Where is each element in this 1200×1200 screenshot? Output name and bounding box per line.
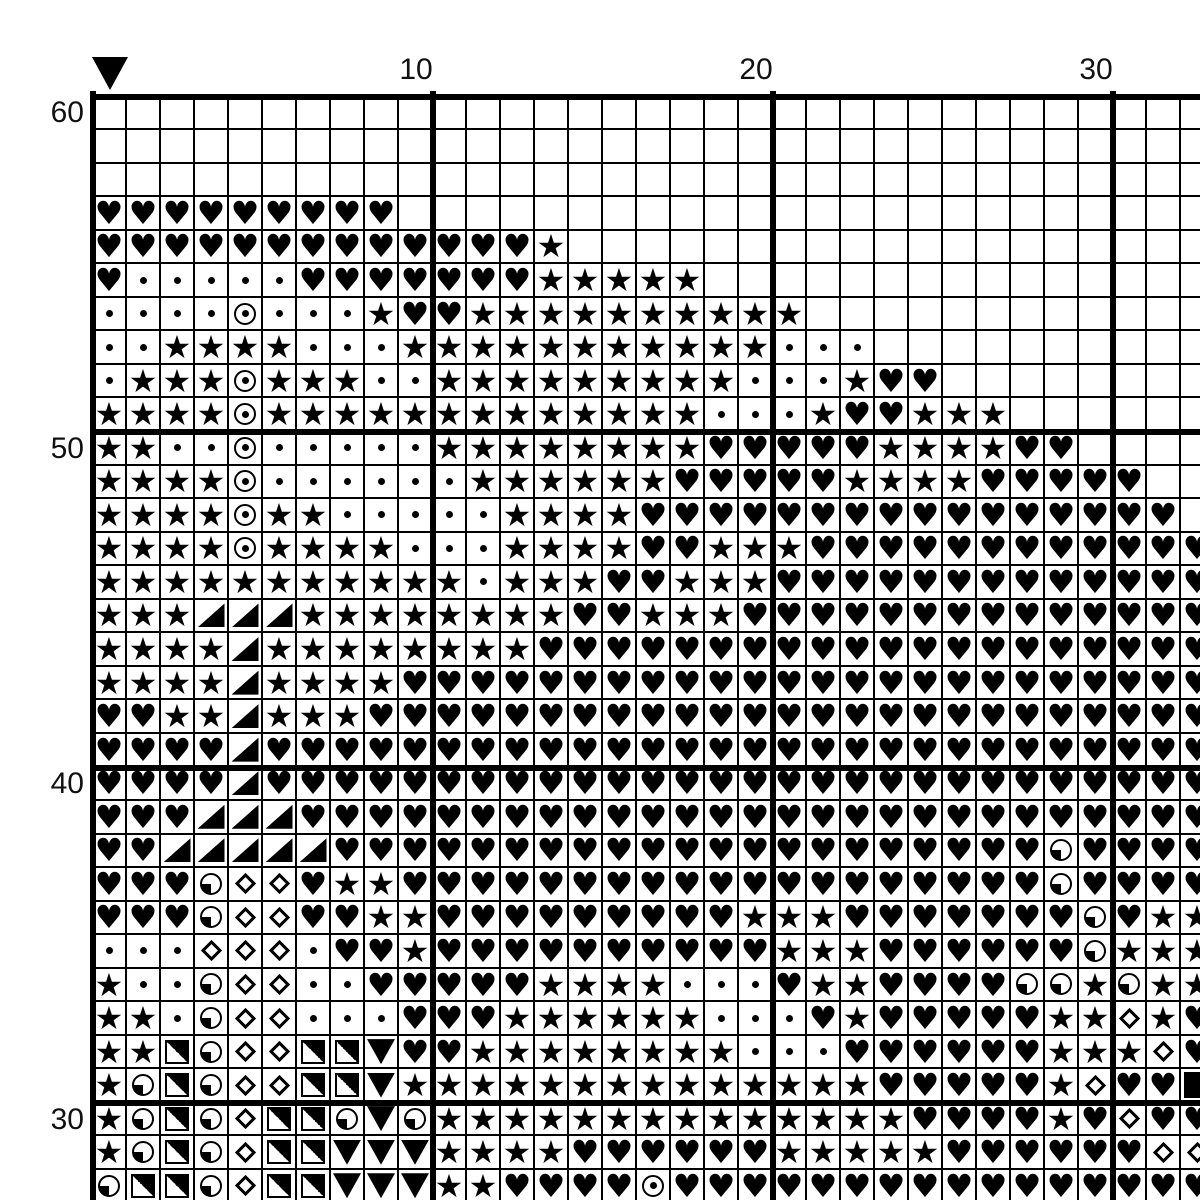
grid-cell: ♥ bbox=[977, 1002, 1011, 1036]
star-icon: ★ bbox=[333, 566, 362, 598]
grid-cell: ♥ bbox=[297, 734, 331, 768]
dot-icon bbox=[174, 444, 181, 451]
grid-cell: ♥ bbox=[875, 868, 909, 902]
dot-icon bbox=[310, 947, 317, 954]
heart-icon: ♥ bbox=[707, 1170, 736, 1200]
grid-cell bbox=[501, 197, 535, 231]
grid-cell: ♥ bbox=[637, 734, 671, 768]
grid-major-vline bbox=[90, 91, 96, 1200]
grid-cell bbox=[467, 566, 501, 600]
corner-triangle-icon bbox=[198, 805, 225, 829]
grid-cell: ♥ bbox=[365, 700, 399, 734]
star-icon: ★ bbox=[299, 566, 328, 598]
grid-cell bbox=[671, 197, 705, 231]
star-icon: ★ bbox=[265, 398, 294, 430]
star-icon: ★ bbox=[299, 633, 328, 665]
star-icon: ★ bbox=[537, 969, 566, 1001]
grid-cell: ♥ bbox=[331, 902, 365, 936]
heart-icon: ♥ bbox=[673, 633, 702, 665]
star-icon: ★ bbox=[197, 700, 226, 732]
grid-cell: ♥ bbox=[977, 700, 1011, 734]
heart-icon: ♥ bbox=[129, 734, 158, 766]
grid-cell bbox=[977, 130, 1011, 164]
grid-cell: ♥ bbox=[1045, 499, 1079, 533]
grid-cell: ♥ bbox=[93, 767, 127, 801]
star-icon: ★ bbox=[639, 398, 668, 430]
heart-icon: ♥ bbox=[945, 700, 974, 732]
grid-cell: ★ bbox=[535, 1069, 569, 1103]
grid-cell: ♥ bbox=[773, 767, 807, 801]
grid-cell: ★ bbox=[603, 1002, 637, 1036]
star-icon: ★ bbox=[469, 1103, 498, 1135]
grid-cell: ★ bbox=[195, 398, 229, 432]
heart-icon: ♥ bbox=[707, 834, 736, 866]
grid-cell bbox=[705, 969, 739, 1003]
grid-cell: ★ bbox=[535, 499, 569, 533]
star-icon: ★ bbox=[1149, 1002, 1178, 1034]
grid-cell: ★ bbox=[569, 1002, 603, 1036]
grid-cell: ♥ bbox=[1079, 700, 1113, 734]
heart-icon: ♥ bbox=[639, 700, 668, 732]
grid-cell: ♥ bbox=[739, 600, 773, 634]
star-icon: ★ bbox=[1081, 969, 1110, 1001]
star-icon: ★ bbox=[299, 700, 328, 732]
grid-cell: ★ bbox=[365, 633, 399, 667]
dot-icon bbox=[344, 310, 351, 317]
grid-cell bbox=[297, 1069, 331, 1103]
grid-cell: ♥ bbox=[977, 566, 1011, 600]
heart-icon: ♥ bbox=[605, 599, 634, 631]
circle-dot-icon bbox=[234, 470, 256, 492]
heart-icon: ♥ bbox=[775, 499, 804, 531]
grid-cell bbox=[1079, 231, 1113, 265]
heart-icon: ♥ bbox=[1115, 1136, 1144, 1168]
grid-cell: ★ bbox=[297, 700, 331, 734]
grid-cell: ♥ bbox=[603, 868, 637, 902]
half-square-icon bbox=[267, 1174, 291, 1198]
grid-cell: ♥ bbox=[297, 868, 331, 902]
heart-icon: ♥ bbox=[1115, 633, 1144, 665]
grid-cell: ♥ bbox=[1011, 868, 1045, 902]
grid-cell bbox=[331, 1002, 365, 1036]
grid-cell: ★ bbox=[331, 633, 365, 667]
grid-cell: ♥ bbox=[467, 767, 501, 801]
quarter-circle-icon bbox=[98, 1175, 120, 1197]
heart-icon: ♥ bbox=[1183, 767, 1200, 799]
heart-icon: ♥ bbox=[741, 700, 770, 732]
heart-icon: ♥ bbox=[1047, 499, 1076, 531]
grid-cell: ♥ bbox=[739, 868, 773, 902]
grid-cell: ♥ bbox=[943, 633, 977, 667]
grid-cell: ★ bbox=[1113, 1036, 1147, 1070]
grid-cell bbox=[127, 1136, 161, 1170]
grid-cell: ♥ bbox=[1181, 1002, 1200, 1036]
star-icon: ★ bbox=[435, 365, 464, 397]
grid-cell bbox=[807, 1036, 841, 1070]
heart-icon: ♥ bbox=[1081, 532, 1110, 564]
star-icon: ★ bbox=[503, 566, 532, 598]
star-icon: ★ bbox=[673, 1069, 702, 1101]
heart-icon: ♥ bbox=[367, 264, 396, 296]
grid-cell bbox=[773, 398, 807, 432]
grid-cell: ♥ bbox=[399, 298, 433, 332]
star-icon: ★ bbox=[163, 633, 192, 665]
heart-icon: ♥ bbox=[605, 868, 634, 900]
heart-icon: ♥ bbox=[299, 734, 328, 766]
grid-cell bbox=[1113, 1002, 1147, 1036]
heart-icon: ♥ bbox=[809, 834, 838, 866]
heart-icon: ♥ bbox=[503, 1170, 532, 1200]
grid-cell: ♥ bbox=[943, 533, 977, 567]
heart-icon: ♥ bbox=[639, 633, 668, 665]
star-icon: ★ bbox=[333, 868, 362, 900]
grid-cell: ★ bbox=[433, 1170, 467, 1200]
heart-icon: ♥ bbox=[707, 1136, 736, 1168]
grid-cell bbox=[195, 600, 229, 634]
heart-icon: ♥ bbox=[1149, 633, 1178, 665]
grid-cell: ★ bbox=[229, 331, 263, 365]
heart-icon: ♥ bbox=[367, 969, 396, 1001]
down-triangle-icon bbox=[367, 1039, 395, 1064]
grid-cell bbox=[807, 365, 841, 399]
grid-cell bbox=[263, 935, 297, 969]
grid-cell: ★ bbox=[705, 1036, 739, 1070]
grid-cell: ★ bbox=[331, 700, 365, 734]
grid-cell: ♥ bbox=[569, 734, 603, 768]
grid-cell: ♥ bbox=[1079, 801, 1113, 835]
star-icon: ★ bbox=[129, 432, 158, 464]
grid-cell: ♥ bbox=[1011, 835, 1045, 869]
grid-cell: ♥ bbox=[977, 969, 1011, 1003]
star-icon: ★ bbox=[673, 331, 702, 363]
grid-cell bbox=[1147, 331, 1181, 365]
grid-cell bbox=[263, 97, 297, 131]
grid-cell: ♥ bbox=[195, 767, 229, 801]
heart-icon: ♥ bbox=[911, 868, 940, 900]
heart-icon: ♥ bbox=[367, 734, 396, 766]
star-icon: ★ bbox=[163, 532, 192, 564]
quarter-circle-icon bbox=[1050, 873, 1072, 895]
grid-cell: ♥ bbox=[229, 197, 263, 231]
grid-cell bbox=[195, 1136, 229, 1170]
grid-cell bbox=[331, 432, 365, 466]
grid-cell bbox=[1011, 298, 1045, 332]
dot-icon bbox=[786, 411, 793, 418]
grid-cell: ★ bbox=[501, 633, 535, 667]
grid-cell bbox=[195, 1002, 229, 1036]
grid-cell: ★ bbox=[603, 298, 637, 332]
grid-cell: ♥ bbox=[433, 1036, 467, 1070]
grid-cell: ★ bbox=[569, 566, 603, 600]
grid-cell: ★ bbox=[1181, 902, 1200, 936]
grid-cell: ♥ bbox=[841, 667, 875, 701]
grid-cell: ♥ bbox=[909, 533, 943, 567]
star-icon: ★ bbox=[129, 667, 158, 699]
heart-icon: ♥ bbox=[945, 969, 974, 1001]
grid-cell bbox=[297, 935, 331, 969]
grid-cell bbox=[161, 1136, 195, 1170]
grid-cell: ♥ bbox=[93, 801, 127, 835]
heart-icon: ♥ bbox=[673, 499, 702, 531]
heart-icon: ♥ bbox=[707, 767, 736, 799]
grid-cell: ★ bbox=[569, 499, 603, 533]
star-icon: ★ bbox=[945, 398, 974, 430]
grid-cell bbox=[263, 432, 297, 466]
grid-cell: ♥ bbox=[1147, 734, 1181, 768]
heart-icon: ♥ bbox=[401, 868, 430, 900]
heart-icon: ♥ bbox=[979, 1002, 1008, 1034]
heart-icon: ♥ bbox=[1183, 566, 1200, 598]
heart-icon: ♥ bbox=[571, 834, 600, 866]
heart-icon: ♥ bbox=[979, 1069, 1008, 1101]
heart-icon: ♥ bbox=[1183, 599, 1200, 631]
grid-cell bbox=[1113, 331, 1147, 365]
grid-cell bbox=[127, 130, 161, 164]
star-icon: ★ bbox=[979, 432, 1008, 464]
dot-icon bbox=[310, 981, 317, 988]
heart-icon: ♥ bbox=[945, 868, 974, 900]
grid-cell bbox=[229, 432, 263, 466]
dot-icon bbox=[446, 511, 453, 518]
star-icon: ★ bbox=[571, 331, 600, 363]
grid-cell: ★ bbox=[637, 331, 671, 365]
heart-icon: ♥ bbox=[469, 230, 498, 262]
heart-icon: ♥ bbox=[1047, 1136, 1076, 1168]
heart-icon: ♥ bbox=[1081, 1136, 1110, 1168]
grid-cell: ♥ bbox=[127, 868, 161, 902]
heart-icon: ♥ bbox=[469, 935, 498, 967]
grid-cell bbox=[1045, 298, 1079, 332]
grid-cell: ★ bbox=[807, 1136, 841, 1170]
star-icon: ★ bbox=[639, 365, 668, 397]
grid-cell bbox=[195, 130, 229, 164]
grid-cell: ★ bbox=[671, 1103, 705, 1137]
grid-cell: ♥ bbox=[569, 935, 603, 969]
grid-cell bbox=[1181, 331, 1200, 365]
grid-cell bbox=[1181, 466, 1200, 500]
grid-cell: ♥ bbox=[399, 231, 433, 265]
grid-cell bbox=[807, 164, 841, 198]
grid-cell: ★ bbox=[195, 365, 229, 399]
grid-cell: ♥ bbox=[875, 801, 909, 835]
grid-cell: ♥ bbox=[909, 935, 943, 969]
star-icon: ★ bbox=[605, 969, 634, 1001]
grid-cell: ♥ bbox=[433, 231, 467, 265]
heart-icon: ♥ bbox=[673, 734, 702, 766]
grid-cell: ★ bbox=[671, 298, 705, 332]
grid-cell: ★ bbox=[399, 633, 433, 667]
grid-cell: ♥ bbox=[433, 767, 467, 801]
grid-cell: ★ bbox=[569, 365, 603, 399]
heart-icon: ♥ bbox=[979, 700, 1008, 732]
grid-cell: ♥ bbox=[943, 835, 977, 869]
heart-icon: ♥ bbox=[1183, 801, 1200, 833]
grid-cell bbox=[331, 130, 365, 164]
grid-cell bbox=[671, 164, 705, 198]
grid-cell bbox=[943, 197, 977, 231]
grid-cell bbox=[229, 734, 263, 768]
star-icon: ★ bbox=[537, 1103, 566, 1135]
grid-cell bbox=[1079, 331, 1113, 365]
grid-cell bbox=[365, 1069, 399, 1103]
heart-icon: ♥ bbox=[571, 667, 600, 699]
grid-cell bbox=[1045, 835, 1079, 869]
star-icon: ★ bbox=[1047, 1002, 1076, 1034]
grid-cell: ♥ bbox=[1011, 1002, 1045, 1036]
grid-cell: ♥ bbox=[637, 566, 671, 600]
heart-icon: ♥ bbox=[639, 868, 668, 900]
dot-icon bbox=[276, 478, 283, 485]
heart-icon: ♥ bbox=[911, 633, 940, 665]
heart-icon: ♥ bbox=[639, 801, 668, 833]
heart-icon: ♥ bbox=[1047, 700, 1076, 732]
grid-cell: ♥ bbox=[1011, 633, 1045, 667]
grid-cell: ♥ bbox=[297, 902, 331, 936]
star-icon: ★ bbox=[197, 667, 226, 699]
grid-cell: ♥ bbox=[1147, 1103, 1181, 1137]
grid-cell: ♥ bbox=[365, 197, 399, 231]
grid-cell: ★ bbox=[331, 398, 365, 432]
heart-icon: ♥ bbox=[979, 633, 1008, 665]
grid-cell bbox=[195, 801, 229, 835]
grid-cell bbox=[195, 902, 229, 936]
heart-icon: ♥ bbox=[911, 1069, 940, 1101]
grid-cell bbox=[977, 164, 1011, 198]
heart-icon: ♥ bbox=[945, 566, 974, 598]
grid-cell: ★ bbox=[535, 969, 569, 1003]
heart-icon: ♥ bbox=[469, 767, 498, 799]
grid-cell: ★ bbox=[977, 398, 1011, 432]
heart-icon: ♥ bbox=[809, 767, 838, 799]
heart-icon: ♥ bbox=[1047, 935, 1076, 967]
heart-icon: ♥ bbox=[163, 801, 192, 833]
heart-icon: ♥ bbox=[877, 801, 906, 833]
heart-icon: ♥ bbox=[775, 633, 804, 665]
grid-cell: ★ bbox=[671, 331, 705, 365]
grid-cell: ♥ bbox=[603, 1170, 637, 1200]
heart-icon: ♥ bbox=[1081, 868, 1110, 900]
grid-cell bbox=[229, 97, 263, 131]
star-icon: ★ bbox=[299, 365, 328, 397]
heart-icon: ♥ bbox=[129, 901, 158, 933]
heart-icon: ♥ bbox=[741, 1170, 770, 1200]
star-icon: ★ bbox=[537, 532, 566, 564]
grid-cell: ★ bbox=[93, 1036, 127, 1070]
grid-cell: ♥ bbox=[501, 767, 535, 801]
grid-cell: ★ bbox=[161, 633, 195, 667]
heart-icon: ♥ bbox=[571, 801, 600, 833]
star-icon: ★ bbox=[911, 1136, 940, 1168]
grid-cell: ★ bbox=[297, 667, 331, 701]
heart-icon: ♥ bbox=[1149, 566, 1178, 598]
grid-cell bbox=[943, 164, 977, 198]
grid-cell: ♥ bbox=[331, 264, 365, 298]
heart-icon: ♥ bbox=[809, 566, 838, 598]
grid-cell: ♥ bbox=[195, 734, 229, 768]
grid-cell bbox=[875, 197, 909, 231]
grid-cell: ♥ bbox=[841, 801, 875, 835]
heart-icon: ♥ bbox=[537, 767, 566, 799]
heart-icon: ♥ bbox=[911, 767, 940, 799]
heart-icon: ♥ bbox=[843, 398, 872, 430]
grid-cell bbox=[229, 164, 263, 198]
column-label: 20 bbox=[716, 54, 796, 86]
grid-cell bbox=[1181, 398, 1200, 432]
grid-cell: ♥ bbox=[399, 835, 433, 869]
heart-icon: ♥ bbox=[1149, 1103, 1178, 1135]
heart-icon: ♥ bbox=[1013, 532, 1042, 564]
star-icon: ★ bbox=[1149, 969, 1178, 1001]
dot-icon bbox=[378, 511, 385, 518]
grid-cell: ★ bbox=[637, 432, 671, 466]
grid-cell bbox=[161, 130, 195, 164]
dot-icon bbox=[412, 545, 419, 552]
star-icon: ★ bbox=[129, 1036, 158, 1068]
grid-cell: ★ bbox=[195, 466, 229, 500]
heart-icon: ♥ bbox=[503, 667, 532, 699]
grid-cell: ♥ bbox=[875, 566, 909, 600]
star-icon: ★ bbox=[367, 532, 396, 564]
grid-cell: ♥ bbox=[841, 868, 875, 902]
star-icon: ★ bbox=[945, 465, 974, 497]
star-icon: ★ bbox=[605, 398, 634, 430]
dot-icon bbox=[208, 310, 215, 317]
heart-icon: ♥ bbox=[1013, 465, 1042, 497]
grid-major-hline bbox=[90, 765, 1200, 771]
star-icon: ★ bbox=[639, 599, 668, 631]
grid-cell bbox=[1079, 1069, 1113, 1103]
grid-cell bbox=[807, 130, 841, 164]
heart-icon: ♥ bbox=[1013, 1002, 1042, 1034]
grid-cell bbox=[127, 1069, 161, 1103]
heart-icon: ♥ bbox=[401, 1002, 430, 1034]
grid-cell: ♥ bbox=[93, 197, 127, 231]
heart-icon: ♥ bbox=[1013, 1103, 1042, 1135]
grid-cell: ♥ bbox=[603, 801, 637, 835]
heart-icon: ♥ bbox=[673, 901, 702, 933]
grid-cell bbox=[161, 432, 195, 466]
heart-icon: ♥ bbox=[605, 767, 634, 799]
grid-cell: ♥ bbox=[365, 835, 399, 869]
grid-cell: ♥ bbox=[671, 667, 705, 701]
heart-icon: ♥ bbox=[979, 834, 1008, 866]
dot-icon bbox=[106, 377, 113, 384]
grid-cell: ★ bbox=[195, 633, 229, 667]
grid-cell: ♥ bbox=[1113, 633, 1147, 667]
star-icon: ★ bbox=[265, 633, 294, 665]
heart-icon: ♥ bbox=[945, 1069, 974, 1101]
grid-cell: ♥ bbox=[501, 835, 535, 869]
grid-cell: ★ bbox=[535, 533, 569, 567]
grid-cell: ♥ bbox=[1113, 1069, 1147, 1103]
heart-icon: ♥ bbox=[1149, 767, 1178, 799]
heart-icon: ♥ bbox=[1183, 1002, 1200, 1034]
grid-cell bbox=[705, 1002, 739, 1036]
heart-icon: ♥ bbox=[1115, 566, 1144, 598]
grid-cell: ★ bbox=[705, 1103, 739, 1137]
quarter-circle-icon bbox=[336, 1108, 358, 1130]
star-icon: ★ bbox=[435, 432, 464, 464]
grid-cell bbox=[433, 533, 467, 567]
grid-cell: ♥ bbox=[705, 767, 739, 801]
dot-icon bbox=[752, 1015, 759, 1022]
dot-icon bbox=[276, 444, 283, 451]
grid-cell: ♥ bbox=[1045, 767, 1079, 801]
grid-cell: ★ bbox=[93, 667, 127, 701]
grid-cell bbox=[195, 868, 229, 902]
grid-cell: ★ bbox=[93, 566, 127, 600]
grid-cell bbox=[773, 231, 807, 265]
